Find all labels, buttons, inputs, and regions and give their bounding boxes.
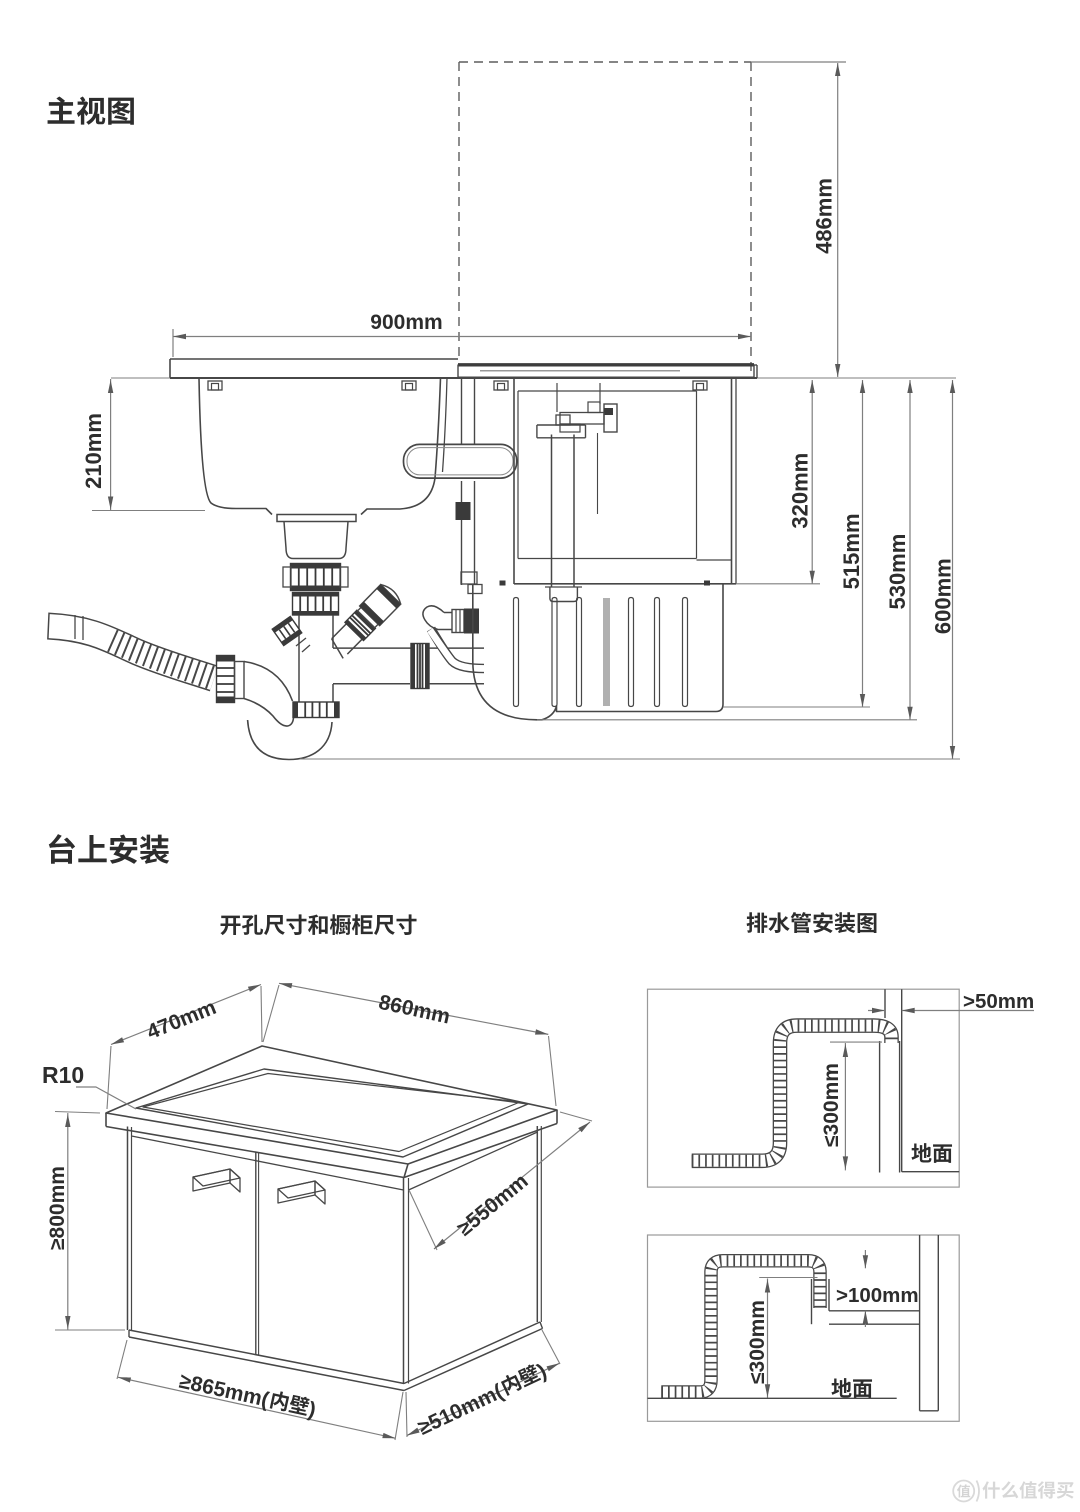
svg-text:R10: R10 [42, 1062, 84, 1088]
svg-text:≥800mm: ≥800mm [46, 1166, 69, 1250]
svg-text:≤300mm: ≤300mm [820, 1063, 843, 1147]
svg-text:486mm: 486mm [812, 178, 837, 254]
svg-text:>100mm: >100mm [836, 1284, 919, 1307]
svg-text:515mm: 515mm [839, 513, 864, 589]
svg-text:≤300mm: ≤300mm [746, 1300, 769, 1384]
svg-text:320mm: 320mm [787, 453, 812, 529]
svg-text:530mm: 530mm [885, 534, 910, 610]
svg-text:900mm: 900mm [370, 311, 442, 334]
svg-text:600mm: 600mm [930, 558, 955, 634]
svg-text:210mm: 210mm [81, 413, 106, 489]
svg-text:>50mm: >50mm [963, 990, 1034, 1013]
